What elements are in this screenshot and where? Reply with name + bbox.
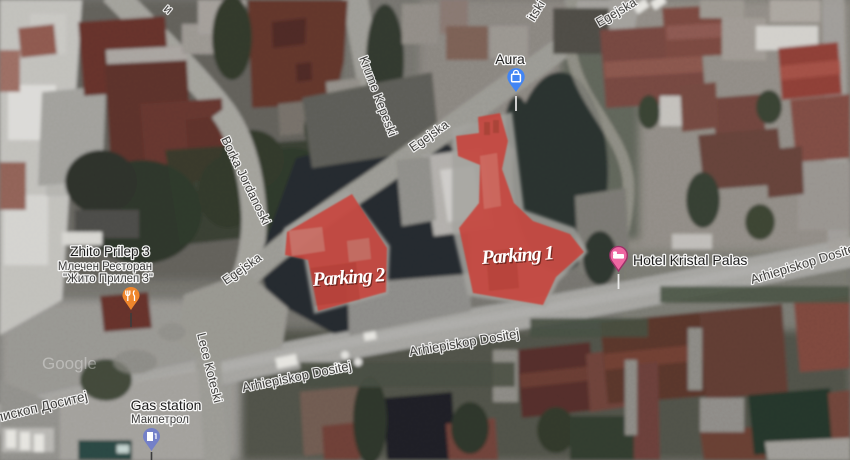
svg-text:"Жито Прилеп 3": "Жито Прилеп 3" xyxy=(63,273,153,285)
svg-text:Hotel Kristal Palas: Hotel Kristal Palas xyxy=(633,252,747,268)
svg-text:Млечен Ресторан: Млечен Ресторан xyxy=(58,261,152,273)
svg-text:Макпетрол: Макпетрол xyxy=(131,414,189,426)
svg-text:Gas station: Gas station xyxy=(131,397,202,413)
svg-text:Google: Google xyxy=(42,354,97,373)
svg-text:Aura: Aura xyxy=(495,51,525,67)
svg-text:Zhito Prilep 3: Zhito Prilep 3 xyxy=(70,244,150,259)
